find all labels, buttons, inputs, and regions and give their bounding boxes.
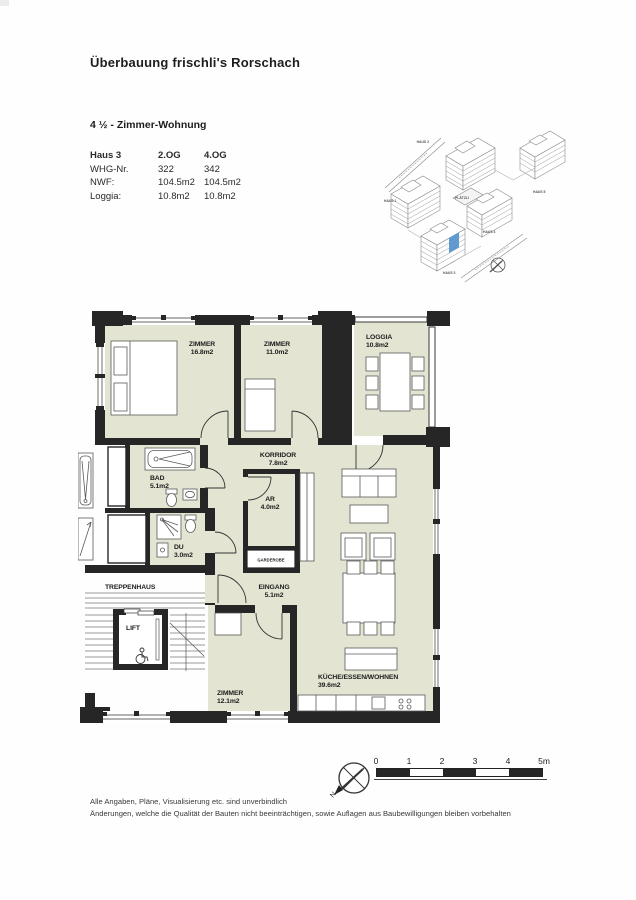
label-haus4: HAUS 4 [483,230,496,234]
label-du-area: 3.0m2 [174,552,193,559]
label-loggia: LOGGIA [366,334,392,341]
shower [157,515,181,539]
table-row: NWF: 104.5m2 104.5m2 [90,176,254,190]
apartment-type-subtitle: 4 ½ - Zimmer-Wohnung [90,119,206,131]
building-haus3 [421,220,465,271]
table-header-row: Haus 3 2.OG 4.OG [90,149,254,163]
label-zimmer3-area: 12.1m2 [217,698,240,705]
label-bad-area: 5.1m2 [150,483,169,490]
label-zimmer2-area: 11.0m2 [266,349,288,356]
bathtub [145,448,195,470]
coffee-table [350,505,388,523]
label-lift: LIFT [126,625,141,632]
scale-tick: 4 [506,756,511,766]
label-kueche: KÜCHE/ESSEN/WOHNEN [318,672,398,681]
building-haus5 [520,131,565,179]
label-haus5: HAUS 5 [533,190,546,194]
disclaimer-line1: Alle Angaben, Pläne, Visualisierung etc.… [90,796,511,808]
label-ar-area: 4.0m2 [261,504,280,511]
scale-tick: 0 [374,756,379,766]
row-label: WHG-Nr. [90,163,158,177]
header-floor-4og: 4.OG [204,149,254,163]
scale-bar-segments [376,768,543,777]
label-ar: AR [265,496,275,503]
floor-plan: ZIMMER 16.8m2 ZIMMER 11.0m2 LOGGIA 10.8m… [78,303,463,728]
kitchen-island [345,648,397,670]
site-plan-isometric: HAUS 2 HAUS 5 HAUS 1 HAUS 4 HAUS 3 PLÄTZ… [383,126,578,294]
toilet-du [185,515,196,533]
label-zimmer2: ZIMMER [264,341,290,348]
disclaimer: Alle Angaben, Pläne, Visualisierung etc.… [90,796,511,819]
bed [111,341,177,415]
label-du: DU [174,544,184,551]
kitchen-counter [298,695,425,711]
building-haus2 [446,138,495,190]
label-plaetzli: PLÄTZLI [455,196,469,200]
scale-bar: 0 1 2 3 4 5m [374,756,564,788]
table-row: Loggia: 10.8m2 10.8m2 [90,190,254,204]
row-value: 10.8m2 [158,190,204,204]
label-bad: BAD [150,475,165,482]
sink-bad [183,489,197,500]
loggia-table [366,353,424,411]
disclaimer-line2: Änderungen, welche die Qualität der Baut… [90,808,511,820]
row-value: 10.8m2 [204,190,254,204]
label-haus2: HAUS 2 [417,140,430,144]
scale-tick: 1 [407,756,412,766]
label-loggia-area: 10.8m2 [366,342,389,349]
apartment-info-table: Haus 3 2.OG 4.OG WHG-Nr. 322 342 NWF: 10… [90,149,254,203]
label-korridor: KORRIDOR [260,452,296,459]
header-floor-2og: 2.OG [158,149,204,163]
label-zimmer1: ZIMMER [189,341,215,348]
site-plan-compass-icon [490,258,505,272]
scale-bar-underline [374,779,547,780]
row-label: Loggia: [90,190,158,204]
row-value: 104.5m2 [204,176,254,190]
label-eingang: EINGANG [258,584,289,591]
row-value: 104.5m2 [158,176,204,190]
header-house: Haus 3 [90,149,158,163]
sofa [342,469,396,497]
label-eingang-area: 5.1m2 [265,592,284,599]
brochure-page: Überbauung frischli's Rorschach 4 ½ - Zi… [0,0,636,900]
scale-tick: 2 [440,756,445,766]
label-garderobe: GARDEROBE [257,558,284,563]
scale-tick: 3 [473,756,478,766]
label-haus3: HAUS 3 [443,271,456,275]
lift [113,609,168,670]
scale-tick: 5m [538,756,550,766]
row-value: 322 [158,163,204,177]
toilet-bad [166,489,177,507]
dining-table [343,561,395,635]
row-label: NWF: [90,176,158,190]
label-zimmer3: ZIMMER [217,690,243,697]
label-treppenhaus: TREPPENHAUS [105,584,156,591]
label-haus1: HAUS 1 [384,199,397,203]
neighbour-fixtures [78,453,93,560]
row-value: 342 [204,163,254,177]
sink-du [157,543,168,557]
label-kueche-area: 39.6m2 [318,682,341,689]
label-zimmer1-area: 16.8m2 [191,349,214,356]
label-korridor-area: 7.8m2 [269,460,288,467]
wardrobe [245,379,275,431]
table-row: WHG-Nr. 322 342 [90,163,254,177]
page-title: Überbauung frischli's Rorschach [90,55,300,70]
scan-artifact [0,0,9,6]
